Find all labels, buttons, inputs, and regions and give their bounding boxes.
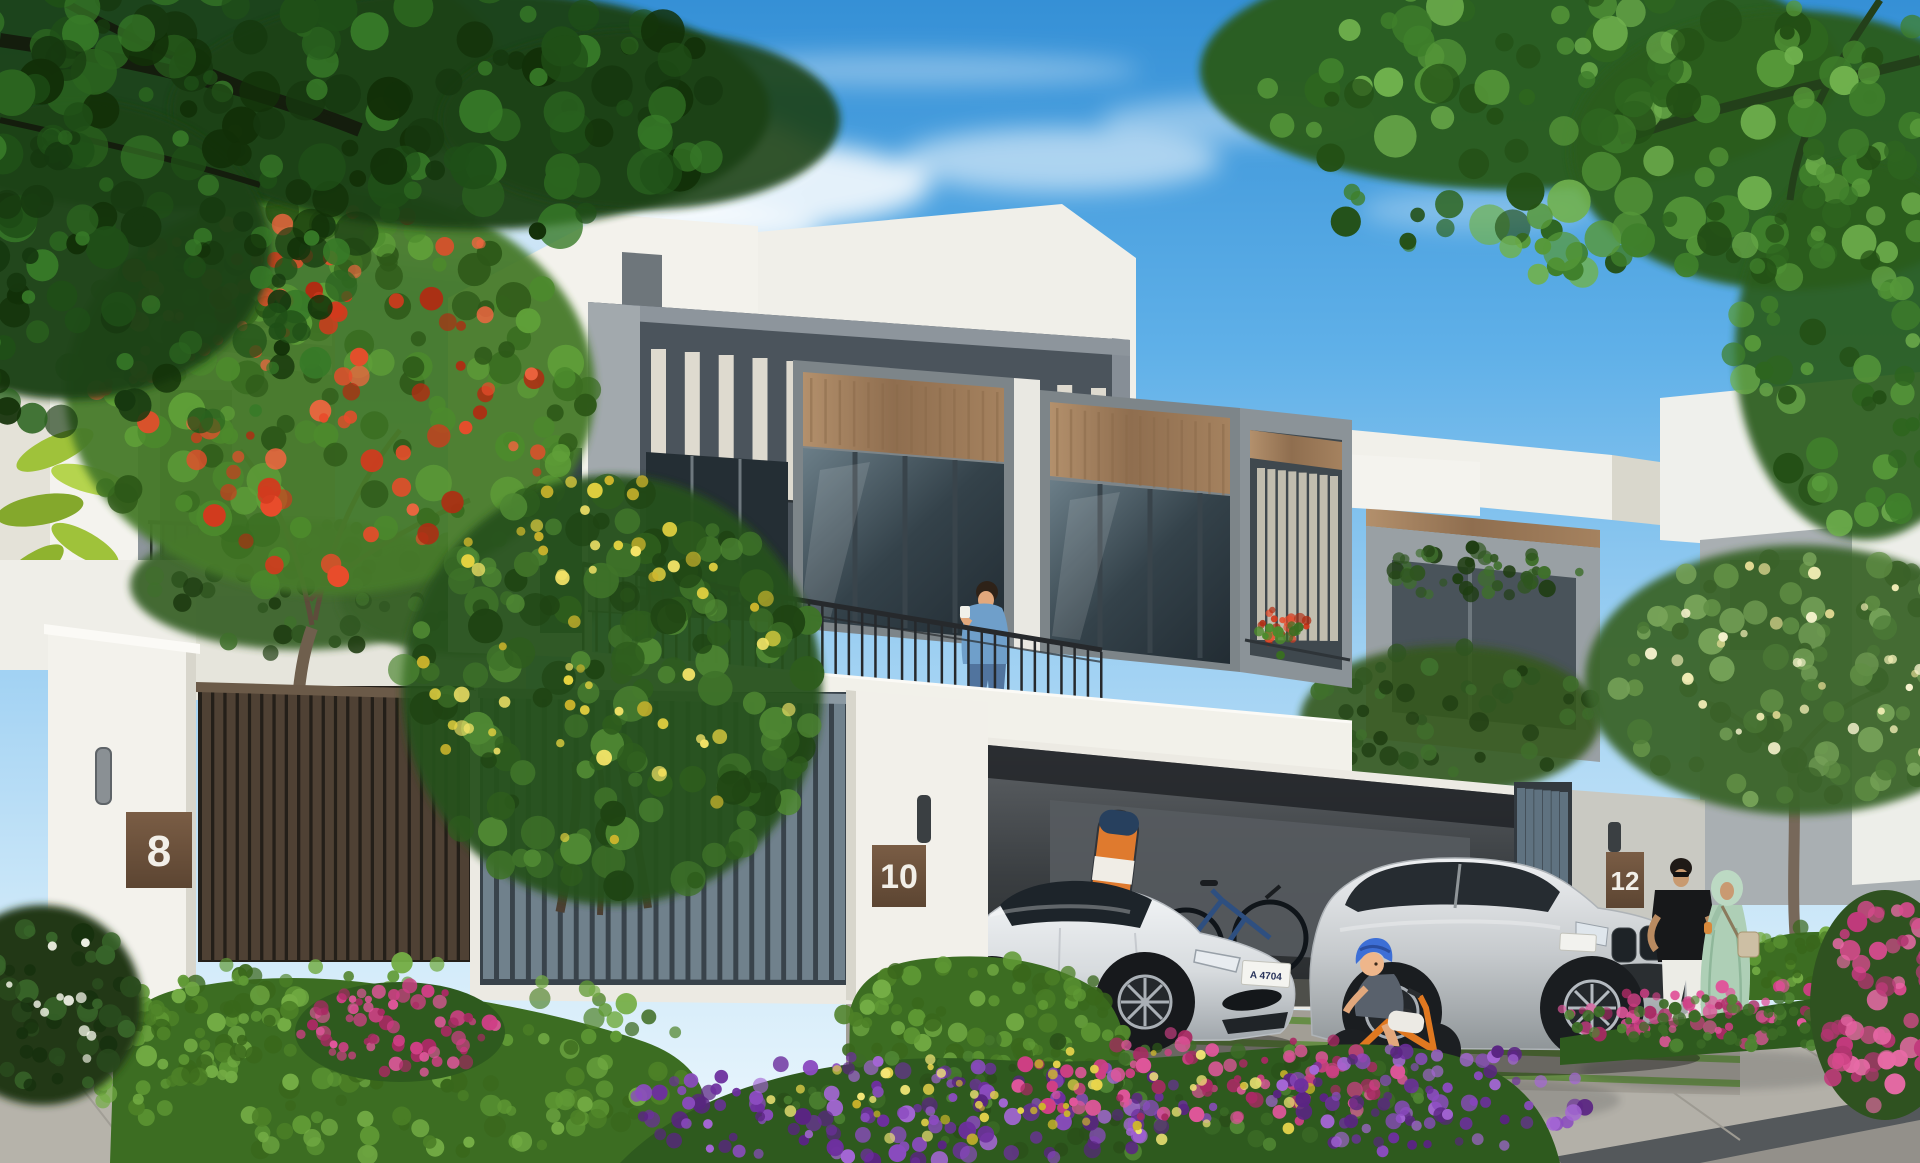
foliage-dot: [175, 495, 192, 512]
slat: [996, 392, 999, 462]
foliage-dot: [266, 362, 279, 375]
foliage-dot: [237, 1035, 247, 1045]
foliage-dot: [506, 1106, 516, 1116]
foliage-dot: [157, 1059, 168, 1070]
foliage-dot: [448, 568, 475, 595]
slat: [251, 693, 260, 960]
foliage-dot: [65, 307, 91, 333]
foliage-dot: [1709, 147, 1728, 166]
foliage-dot: [1615, 78, 1654, 117]
foliage-dot: [1797, 944, 1807, 954]
foliage-dot: [1136, 1058, 1151, 1073]
foliage-dot: [96, 478, 115, 497]
foliage-dot: [1906, 333, 1920, 348]
foliage-dot: [246, 375, 269, 398]
foliage-dot: [419, 1052, 429, 1062]
foliage-dot: [1313, 1077, 1323, 1087]
foliage-dot: [350, 348, 368, 366]
foliage-dot: [488, 728, 496, 736]
foliage-dot: [1439, 579, 1447, 587]
foliage-dot: [1861, 603, 1868, 610]
foliage-dot: [264, 1035, 282, 1053]
foliage-dot: [285, 1100, 296, 1111]
foliage-dot: [157, 1100, 173, 1116]
foliage-dot: [552, 444, 570, 462]
foliage-dot: [217, 1070, 228, 1081]
foliage-dot: [421, 985, 434, 998]
foliage-dot: [625, 1022, 639, 1036]
foliage-dot: [356, 593, 369, 606]
foliage-dot: [216, 357, 240, 381]
foliage-dot: [1866, 206, 1885, 225]
foliage-dot: [185, 239, 202, 256]
foliage-dot: [874, 1111, 881, 1118]
foliage-dot: [1459, 149, 1490, 180]
foliage-dot: [311, 1111, 323, 1123]
foliage-dot: [456, 1039, 470, 1053]
foliage-dot: [1801, 679, 1823, 701]
foliage-dot: [585, 119, 614, 148]
foliage-dot: [679, 766, 706, 793]
foliage-dot: [773, 1056, 789, 1072]
foliage-dot: [273, 625, 293, 645]
foliage-dot: [226, 465, 241, 480]
foliage-dot: [239, 976, 249, 986]
foliage-dot: [504, 637, 535, 668]
foliage-dot: [677, 1086, 686, 1095]
foliage-dot: [1261, 1057, 1268, 1064]
foliage-dot: [1053, 1061, 1061, 1069]
foliage-dot: [1543, 232, 1582, 271]
suv-grille: [1612, 928, 1636, 962]
foliage-dot: [246, 431, 255, 440]
foliage-dot: [279, 974, 293, 988]
slat: [853, 381, 856, 446]
foliage-dot: [631, 546, 642, 557]
foliage-dot: [348, 1052, 356, 1060]
foliage-dot: [232, 451, 244, 463]
foliage-dot: [638, 1111, 648, 1121]
foliage-dot: [1131, 1093, 1142, 1104]
foliage-dot: [1479, 695, 1497, 713]
foliage-dot: [1782, 617, 1799, 634]
foliage-dot: [379, 1066, 390, 1077]
foliage-dot: [114, 475, 142, 503]
foliage-dot: [925, 1054, 935, 1064]
foliage-dot: [178, 975, 189, 986]
foliage-dot: [544, 166, 577, 199]
foliage-dot: [541, 486, 554, 499]
foliage-dot: [307, 1019, 318, 1030]
foliage-dot: [650, 599, 686, 635]
foliage-dot: [884, 1133, 895, 1144]
foliage-dot: [1800, 319, 1827, 346]
foliage-dot: [1456, 638, 1474, 656]
foliage-dot: [987, 964, 999, 976]
house-number-12: 12: [1611, 866, 1640, 896]
slat: [1181, 420, 1184, 491]
foliage-dot: [0, 1062, 15, 1077]
foliage-dot: [198, 175, 219, 196]
foliage-dot: [441, 491, 463, 513]
foliage-dot: [531, 519, 544, 532]
foliage-dot: [1493, 561, 1502, 570]
foliage-dot: [1873, 615, 1898, 640]
foliage-dot: [423, 1135, 437, 1149]
foliage-dot: [95, 1093, 110, 1108]
foliage-dot: [238, 534, 253, 549]
foliage-dot: [220, 484, 237, 501]
foliage-dot: [330, 1040, 338, 1048]
foliage-dot: [529, 276, 555, 302]
foliage-dot: [274, 310, 307, 343]
foliage-dot: [244, 234, 267, 257]
house-number-8: 8: [147, 827, 171, 876]
foliage-dot: [1690, 1012, 1699, 1021]
foliage-dot: [902, 966, 922, 986]
foliage-dot: [1332, 1092, 1341, 1101]
foliage-dot: [250, 266, 273, 289]
foliage-dot: [537, 1140, 547, 1150]
slat: [374, 696, 383, 960]
foliage-dot: [535, 975, 548, 988]
foliage-dot: [1774, 1004, 1785, 1015]
foliage-dot: [313, 1000, 328, 1015]
foliage-dot: [482, 382, 495, 395]
foliage-dot: [1475, 752, 1486, 763]
foliage-dot: [265, 556, 284, 575]
foliage-dot: [912, 997, 924, 1009]
foliage-dot: [334, 367, 352, 385]
foliage-dot: [1760, 689, 1783, 712]
foliage-dot: [666, 1133, 682, 1149]
slat: [1153, 417, 1156, 487]
foliage-dot: [703, 1119, 713, 1129]
foliage-dot: [589, 566, 597, 574]
foliage-dot: [477, 306, 494, 323]
slat: [1167, 419, 1170, 490]
foliage-dot: [463, 662, 488, 687]
foliage-dot: [1023, 1038, 1035, 1050]
foliage-dot: [682, 1097, 695, 1110]
foliage-dot: [658, 718, 669, 729]
foliage-dot: [440, 1079, 454, 1093]
foliage-dot: [545, 1092, 563, 1110]
foliage-dot: [63, 995, 74, 1006]
slat: [1320, 475, 1328, 641]
foliage-dot: [1761, 1026, 1768, 1033]
foliage-dot: [1263, 1138, 1276, 1151]
foliage-dot: [1111, 1068, 1125, 1082]
foliage-dot: [360, 411, 388, 439]
foliage-dot: [980, 1113, 990, 1123]
foliage-dot: [136, 1080, 151, 1095]
foliage-dot: [1362, 1124, 1371, 1133]
foliage-dot: [1399, 233, 1416, 250]
foliage-dot: [1872, 390, 1886, 404]
foliage-dot: [20, 1045, 34, 1059]
foliage-dot: [956, 1080, 963, 1087]
foliage-dot: [1455, 1137, 1464, 1146]
foliage-dot: [523, 1024, 534, 1035]
foliage-dot: [1899, 902, 1915, 918]
foliage-dot: [1035, 1059, 1044, 1068]
foliage-dot: [75, 231, 89, 245]
foliage-dot: [857, 1093, 865, 1101]
slat: [896, 385, 899, 452]
foliage-dot: [1012, 964, 1031, 983]
foliage-dot: [861, 1017, 872, 1028]
foliage-dot: [1460, 1117, 1473, 1130]
foliage-dot: [1489, 1079, 1500, 1090]
foliage-dot: [514, 552, 539, 577]
foliage-dot: [1351, 191, 1366, 206]
foliage-dot: [860, 1149, 873, 1162]
foliage-dot: [927, 1064, 933, 1070]
slat: [386, 696, 395, 960]
foliage-dot: [1823, 761, 1841, 779]
foliage-dot: [33, 1000, 41, 1008]
foliage-dot: [338, 988, 350, 1000]
foliage-dot: [1380, 1075, 1391, 1086]
foliage-dot: [1718, 632, 1728, 642]
foliage-dot: [1875, 760, 1896, 781]
foliage-dot: [520, 6, 537, 23]
foliage-dot: [1395, 1101, 1410, 1116]
foliage-dot: [538, 546, 548, 556]
foliage-dot: [872, 980, 891, 999]
foliage-dot: [524, 849, 542, 867]
foliage-dot: [1006, 1013, 1024, 1031]
foliage-dot: [755, 1112, 765, 1122]
foliage-dot: [1524, 1101, 1533, 1110]
coffee-cup: [960, 606, 970, 618]
foliage-dot: [1516, 44, 1540, 68]
foliage-dot: [1008, 1064, 1016, 1072]
foliage-dot: [367, 1034, 377, 1044]
foliage-dot: [1761, 998, 1770, 1007]
slat: [337, 695, 346, 960]
foliage-dot: [1773, 453, 1804, 484]
foliage-dot: [1907, 763, 1920, 776]
foliage-dot: [1273, 1090, 1282, 1099]
foliage-dot: [1659, 999, 1669, 1009]
foliage-dot: [1701, 994, 1709, 1002]
foliage-dot: [203, 504, 226, 527]
foliage-dot: [1811, 226, 1826, 241]
foliage-dot: [1700, 0, 1742, 42]
foliage-dot: [1801, 362, 1814, 375]
foliage-dot: [1585, 220, 1622, 257]
foliage-dot: [929, 1115, 939, 1125]
foliage-dot: [555, 571, 569, 585]
foliage-dot: [1316, 144, 1344, 172]
foliage-dot: [788, 1123, 800, 1135]
foliage-dot: [615, 508, 641, 534]
foliage-dot: [1275, 633, 1286, 644]
foliage-dot: [173, 594, 191, 612]
foliage-dot: [130, 214, 146, 230]
foliage-dot: [1085, 1100, 1101, 1116]
foliage-dot: [1644, 1031, 1651, 1038]
house-number-10: 10: [880, 858, 918, 896]
foliage-dot: [988, 995, 999, 1006]
foliage-dot: [1878, 708, 1885, 715]
foliage-dot: [44, 405, 78, 439]
foliage-dot: [282, 1074, 299, 1091]
foliage-dot: [589, 985, 601, 997]
held-item: [1704, 922, 1712, 934]
foliage-dot: [1091, 1079, 1103, 1091]
foliage-dot: [533, 416, 554, 437]
foliage-dot: [1734, 1038, 1742, 1046]
foliage-dot: [1030, 1131, 1042, 1143]
foliage-dot: [1575, 568, 1584, 577]
foliage-dot: [1793, 87, 1814, 108]
foliage-dot: [327, 1072, 341, 1086]
foliage-dot: [732, 1088, 741, 1097]
foliage-dot: [1504, 589, 1515, 600]
foliage-dot: [459, 421, 472, 434]
foliage-dot: [1850, 663, 1873, 686]
foliage-dot: [1806, 943, 1815, 952]
foliage-dot: [1540, 757, 1555, 772]
foliage-dot: [363, 1002, 373, 1012]
foliage-dot: [598, 1003, 612, 1017]
foliage-dot: [1891, 300, 1920, 330]
foliage-dot: [1276, 651, 1285, 660]
foliage-dot: [1133, 1121, 1142, 1130]
slat: [867, 382, 870, 448]
foliage-dot: [392, 1107, 411, 1126]
foliage-dot: [832, 1065, 842, 1075]
foliage-dot: [183, 256, 206, 279]
foliage-dot: [754, 1149, 764, 1159]
foliage-dot: [707, 622, 731, 646]
foliage-dot: [1816, 164, 1835, 183]
foliage-dot: [1431, 1049, 1443, 1061]
foliage-dot: [444, 146, 470, 172]
foliage-dot: [1045, 970, 1061, 986]
foliage-dot: [575, 203, 596, 224]
foliage-dot: [1895, 366, 1915, 386]
foliage-dot: [1594, 1006, 1605, 1017]
foliage-dot: [1559, 709, 1576, 726]
foliage-dot: [118, 388, 152, 422]
foliage-dot: [508, 441, 518, 451]
foliage-dot: [1379, 680, 1393, 694]
foliage-dot: [32, 1047, 47, 1062]
foliage-dot: [1324, 92, 1339, 107]
foliage-dot: [519, 593, 552, 626]
foliage-dot: [785, 1105, 797, 1117]
slat: [300, 694, 309, 960]
foliage-dot: [1460, 1053, 1474, 1067]
foliage-dot: [304, 230, 320, 246]
foliage-dot: [568, 615, 581, 628]
foliage-dot: [1569, 1073, 1581, 1085]
foliage-dot: [1349, 1095, 1364, 1110]
foliage-dot: [1276, 1079, 1288, 1091]
foliage-dot: [725, 841, 744, 860]
foliage-dot: [1373, 731, 1387, 745]
foliage-dot: [1125, 1141, 1138, 1154]
foliage-dot: [1647, 606, 1668, 627]
foliage-dot: [1230, 1111, 1243, 1124]
foliage-dot: [797, 713, 821, 737]
foliage-dot: [1547, 180, 1590, 223]
foliage-dot: [887, 963, 903, 979]
foliage-dot: [1582, 152, 1621, 191]
foliage-dot: [872, 1086, 883, 1097]
slat: [288, 694, 297, 960]
foliage-dot: [1674, 253, 1699, 278]
foliage-dot: [720, 538, 743, 561]
foliage-dot: [1118, 1052, 1131, 1065]
foliage-dot: [169, 342, 191, 364]
foliage-dot: [425, 160, 445, 180]
foliage-dot: [1373, 1137, 1384, 1148]
foliage-dot: [380, 203, 400, 223]
suv-plate: [1560, 933, 1597, 952]
foliage-dot: [1338, 704, 1353, 719]
foliage-dot: [1793, 970, 1802, 979]
foliage-dot: [1164, 1049, 1172, 1057]
foliage-dot: [1060, 1064, 1073, 1077]
foliage-dot: [1549, 116, 1579, 146]
foliage-dot: [1799, 1022, 1810, 1033]
foliage-dot: [1703, 1020, 1717, 1034]
foliage-dot: [1743, 709, 1767, 733]
foliage-dot: [1097, 1007, 1108, 1018]
foliage-dot: [1196, 1050, 1206, 1060]
foliage-dot: [638, 115, 673, 150]
foliage-dot: [118, 1020, 136, 1038]
slat: [239, 693, 248, 960]
foliage-dot: [1290, 1038, 1297, 1045]
foliage-dot: [439, 313, 457, 331]
foliage-dot: [1457, 557, 1475, 575]
foliage-dot: [1809, 242, 1835, 268]
foliage-dot: [529, 988, 550, 1009]
foliage-dot: [737, 811, 756, 830]
foliage-dot: [277, 1123, 294, 1140]
foliage-dot: [1484, 566, 1495, 577]
slat: [1278, 470, 1286, 640]
foliage-dot: [803, 1060, 818, 1075]
foliage-dot: [1745, 1039, 1758, 1052]
foliage-dot: [1356, 729, 1367, 740]
slat: [882, 383, 885, 449]
foliage-dot: [1625, 1017, 1632, 1024]
foliage-dot: [1063, 977, 1081, 995]
foliage-dot: [296, 1030, 305, 1039]
foliage-dot: [1714, 564, 1739, 589]
foliage-dot: [1538, 580, 1555, 597]
foliage-dot: [412, 1002, 419, 1009]
foliage-dot: [1838, 129, 1869, 160]
slat: [263, 693, 272, 960]
foliage-dot: [1521, 742, 1538, 759]
foliage-dot: [459, 1055, 474, 1070]
foliage-dot: [180, 100, 197, 117]
foliage-dot: [1617, 1024, 1627, 1034]
foliage-dot: [1671, 28, 1705, 62]
foliage-dot: [580, 505, 590, 515]
foliage-dot: [681, 1118, 692, 1129]
foliage-dot: [349, 170, 366, 187]
foliage-dot: [388, 654, 420, 686]
